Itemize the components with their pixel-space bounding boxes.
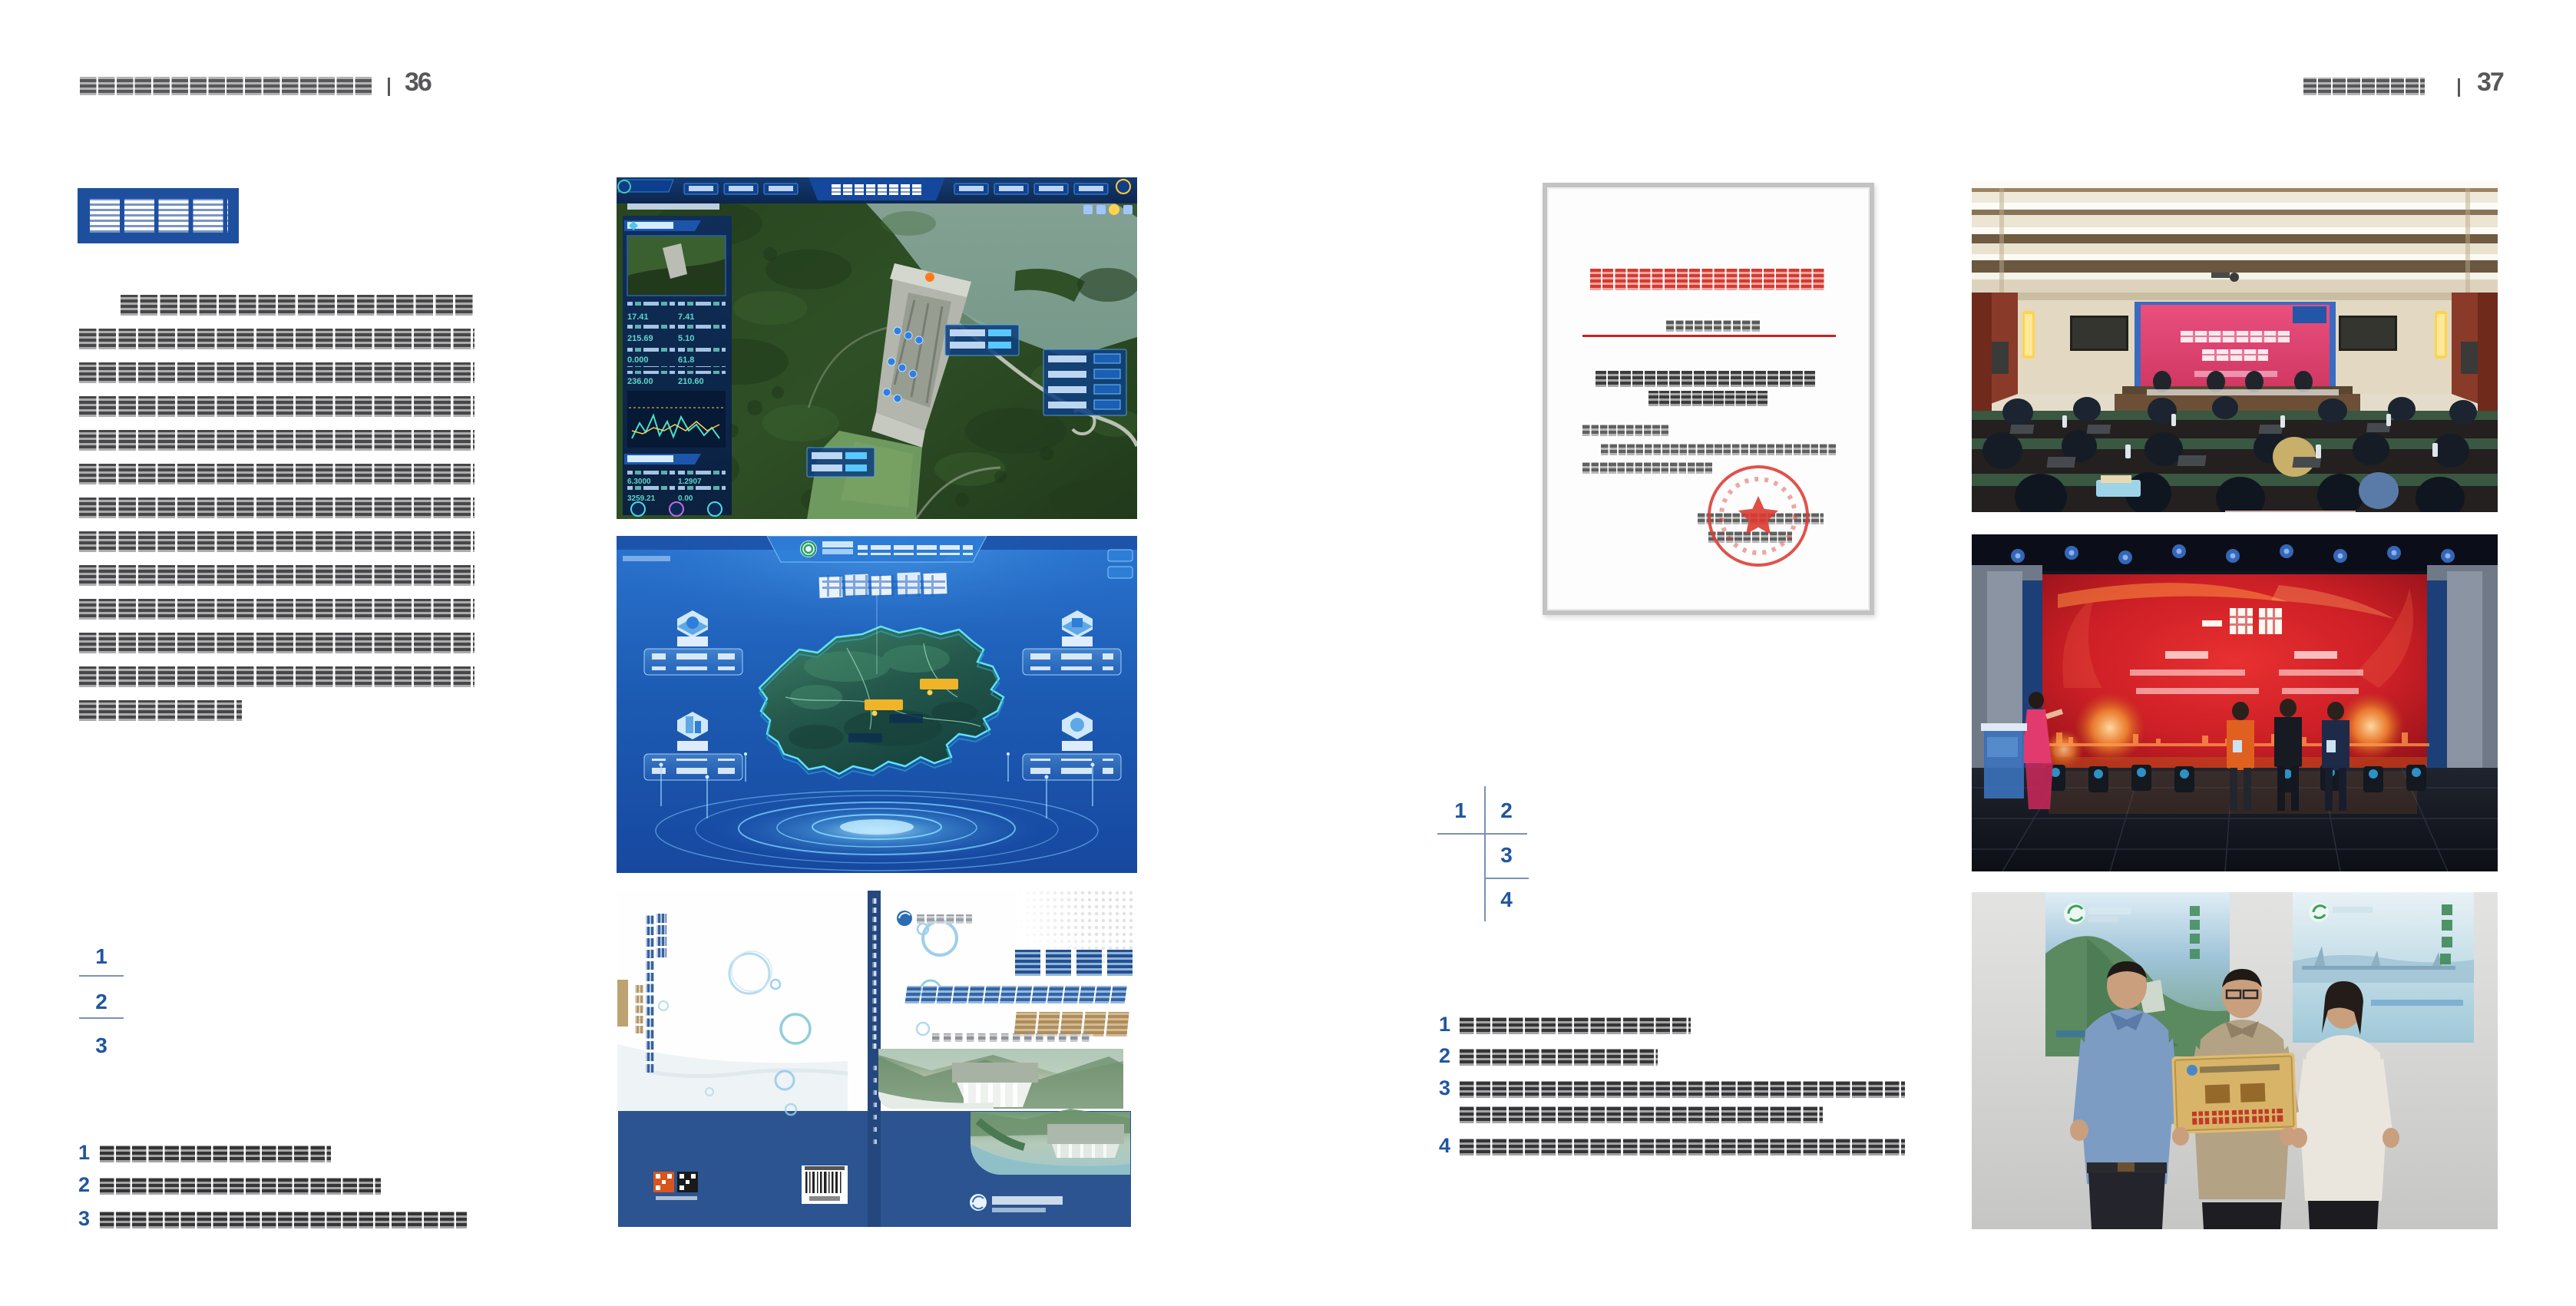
svg-text:5.10: 5.10: [678, 334, 694, 343]
svg-text:215.69: 215.69: [627, 334, 653, 343]
svg-text:3259.21: 3259.21: [627, 494, 656, 503]
svg-text:236.00: 236.00: [627, 377, 653, 386]
svg-text:61.8: 61.8: [678, 355, 694, 365]
svg-text:6.3000: 6.3000: [627, 478, 651, 486]
svg-text:0.00: 0.00: [678, 494, 693, 503]
svg-text:210.60: 210.60: [678, 377, 704, 386]
svg-text:0.000: 0.000: [627, 355, 649, 365]
svg-text:1.2907: 1.2907: [678, 478, 702, 486]
svg-text:7.41: 7.41: [678, 312, 694, 322]
svg-text:17.41: 17.41: [627, 312, 649, 322]
